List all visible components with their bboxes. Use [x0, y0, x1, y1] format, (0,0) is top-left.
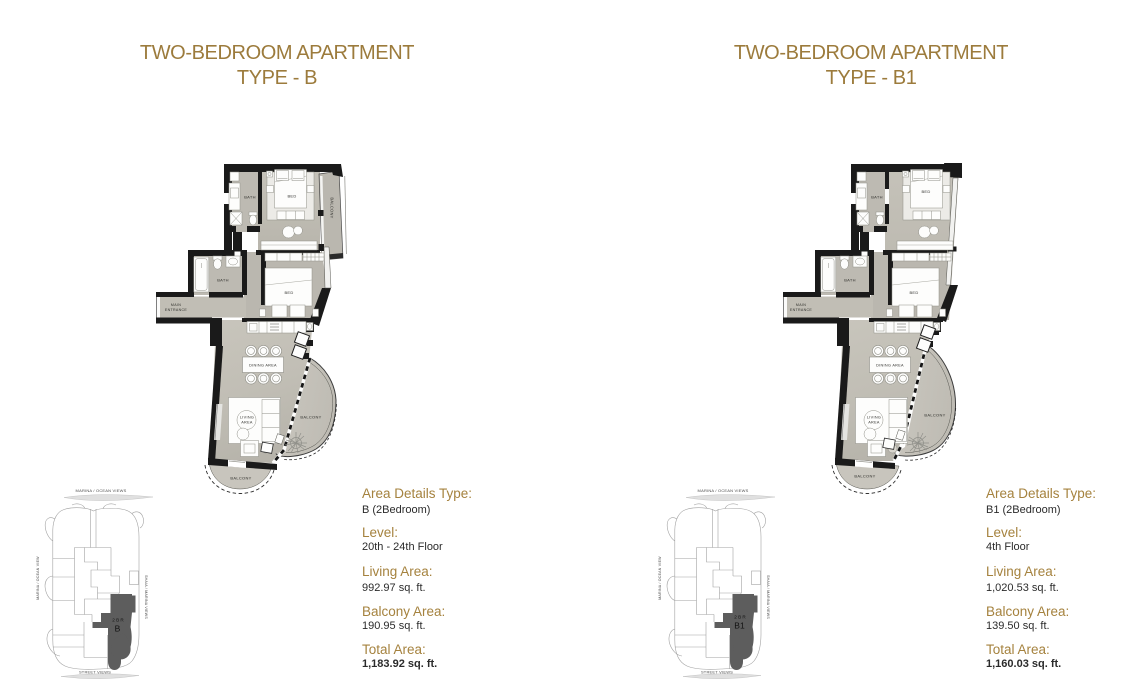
svg-text:B: B [115, 624, 121, 634]
svg-text:ENTRANCE: ENTRANCE [790, 308, 812, 312]
svg-text:ENTRANCE: ENTRANCE [165, 308, 187, 312]
svg-text:LIVING: LIVING [867, 416, 881, 420]
svg-text:2 B R: 2 B R [734, 615, 746, 620]
svg-text:BED: BED [284, 290, 293, 295]
svg-text:2 B R: 2 B R [112, 618, 124, 623]
svg-text:DINING AREA: DINING AREA [876, 364, 904, 368]
svg-text:BED: BED [909, 290, 918, 295]
svg-text:BATH: BATH [844, 278, 856, 283]
svg-text:BATH: BATH [244, 195, 256, 200]
svg-text:AREA: AREA [241, 421, 253, 425]
svg-text:MAIN: MAIN [796, 303, 806, 307]
svg-text:STREET VIEWS: STREET VIEWS [701, 670, 733, 675]
svg-text:SHAIA / MARINA VIEWS: SHAIA / MARINA VIEWS [766, 575, 770, 619]
svg-text:BALCONY: BALCONY [854, 474, 875, 479]
svg-text:BALCONY: BALCONY [300, 415, 321, 420]
svg-text:AREA: AREA [868, 421, 880, 425]
svg-text:B1: B1 [734, 621, 745, 631]
svg-text:BALCONY: BALCONY [230, 476, 251, 481]
svg-text:BALCONY: BALCONY [329, 197, 334, 218]
svg-text:BATH: BATH [217, 278, 229, 283]
svg-text:MARINA / OCEAN VIEW: MARINA / OCEAN VIEW [658, 556, 662, 600]
svg-text:STREET VIEWS: STREET VIEWS [79, 670, 111, 675]
svg-text:MAIN: MAIN [171, 303, 181, 307]
svg-text:BED: BED [921, 189, 930, 194]
svg-text:MARINA / OCEAN VIEW: MARINA / OCEAN VIEW [36, 556, 40, 600]
svg-text:LIVING: LIVING [240, 416, 254, 420]
svg-text:MARINA / OCEAN VIEWS: MARINA / OCEAN VIEWS [698, 488, 749, 493]
svg-text:MARINA / OCEAN VIEWS: MARINA / OCEAN VIEWS [76, 488, 127, 493]
svg-text:BALCONY: BALCONY [924, 413, 945, 418]
svg-text:BED: BED [287, 194, 296, 199]
svg-text:DINING AREA: DINING AREA [249, 364, 277, 368]
svg-text:SHAIA / MARINA VIEWS: SHAIA / MARINA VIEWS [144, 575, 148, 619]
svg-text:BATH: BATH [871, 195, 883, 200]
